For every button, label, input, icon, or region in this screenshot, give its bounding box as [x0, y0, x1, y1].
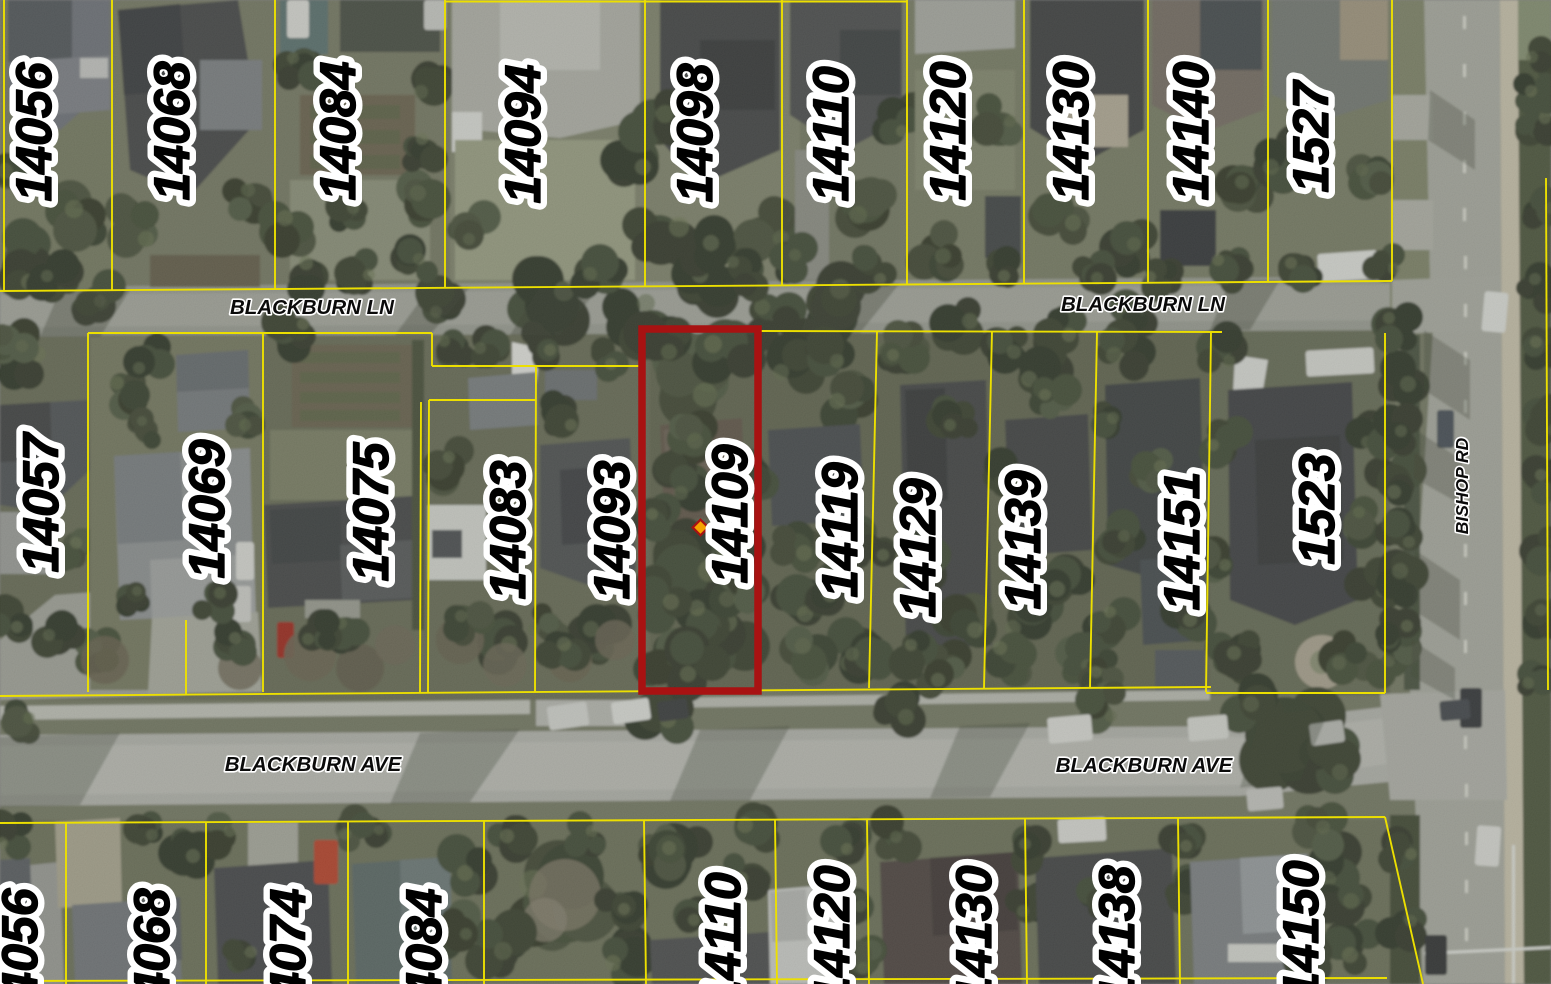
svg-text:14140: 14140	[1163, 61, 1219, 200]
svg-text:BLACKBURN LN: BLACKBURN LN	[1061, 293, 1226, 316]
svg-text:14130: 14130	[946, 865, 1002, 984]
svg-text:BLACKBURN AVE: BLACKBURN AVE	[1056, 754, 1234, 777]
svg-text:14074: 14074	[260, 888, 316, 984]
svg-text:14120: 14120	[920, 61, 976, 200]
svg-text:14110: 14110	[803, 66, 859, 202]
svg-text:14094: 14094	[495, 64, 551, 203]
svg-text:14093: 14093	[584, 460, 640, 599]
svg-text:14109: 14109	[702, 444, 758, 583]
svg-text:14098: 14098	[667, 63, 723, 202]
svg-text:14075: 14075	[343, 441, 399, 581]
svg-text:BISHOP RD: BISHOP RD	[1452, 437, 1472, 534]
svg-text:1523: 1523	[1289, 453, 1345, 564]
svg-text:14084: 14084	[310, 61, 366, 200]
svg-text:14120: 14120	[804, 865, 860, 984]
svg-text:14119: 14119	[812, 462, 868, 598]
svg-text:14150: 14150	[1273, 860, 1329, 984]
svg-text:14057: 14057	[13, 431, 69, 572]
svg-text:14056: 14056	[6, 61, 62, 201]
svg-text:14083: 14083	[480, 460, 536, 599]
svg-text:14151: 14151	[1154, 471, 1210, 610]
svg-text:14068: 14068	[124, 888, 180, 984]
svg-text:14139: 14139	[995, 470, 1051, 609]
svg-text:14110: 14110	[695, 872, 751, 984]
svg-text:14130: 14130	[1043, 61, 1099, 200]
svg-text:14138: 14138	[1089, 865, 1145, 984]
svg-text:BLACKBURN AVE: BLACKBURN AVE	[225, 753, 403, 776]
svg-text:1527: 1527	[1283, 79, 1339, 192]
svg-text:14084: 14084	[396, 888, 452, 984]
svg-text:14069: 14069	[179, 439, 235, 578]
svg-text:14129: 14129	[890, 478, 946, 617]
svg-text:14056: 14056	[0, 887, 48, 984]
svg-text:BLACKBURN LN: BLACKBURN LN	[230, 296, 395, 319]
svg-text:14068: 14068	[144, 61, 200, 200]
